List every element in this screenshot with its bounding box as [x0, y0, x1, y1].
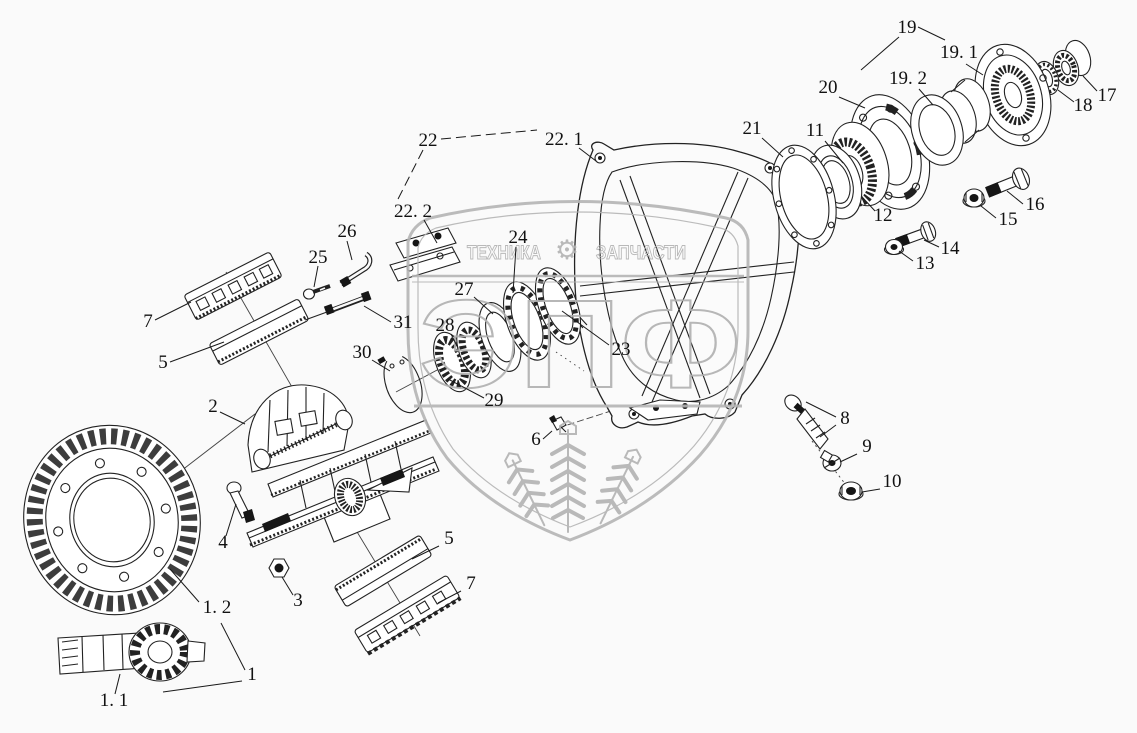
part-differential-case [247, 385, 439, 547]
callout-label-1.1: 1. 1 [100, 690, 129, 711]
callout-leader [282, 577, 293, 595]
callout-label-4: 4 [218, 532, 228, 553]
callout-label-14: 14 [941, 238, 961, 259]
callout-label-24: 24 [509, 227, 529, 248]
part-nut-10 [839, 482, 863, 500]
callout-label-2: 2 [208, 396, 218, 417]
callout-label-19.1: 19. 1 [940, 42, 978, 63]
callout-label-18: 18 [1074, 95, 1093, 116]
callout-label-23: 23 [612, 339, 631, 360]
watermark-text-tehnika: ТЕХНИКА [467, 243, 541, 264]
callout-label-19.2: 19. 2 [889, 68, 927, 89]
part-nut-15 [963, 189, 985, 207]
callout-leader [762, 138, 783, 157]
callout-label-21: 21 [743, 118, 762, 139]
callout-label-19: 19 [898, 17, 917, 38]
callout-label-22: 22 [419, 130, 438, 151]
callout-label-7: 7 [143, 311, 153, 332]
callout-label-3: 3 [293, 590, 303, 611]
callout-label-5: 5 [444, 528, 454, 549]
callout-label-29: 29 [485, 390, 504, 411]
callout-leader [441, 130, 537, 139]
callout-label-13: 13 [916, 253, 935, 274]
callout-label-12: 12 [874, 205, 893, 226]
diagram-svg: ТЕХНИКА ⚙ ЗАПЧАСТИ ЭПФ 2222. 122. 226252… [0, 0, 1137, 733]
callout-label-28: 28 [436, 315, 455, 336]
callout-leader [220, 412, 245, 424]
callout-label-16: 16 [1026, 194, 1045, 215]
callout-label-31: 31 [394, 312, 413, 333]
part-nut-3 [269, 559, 289, 577]
callout-leader [806, 402, 836, 417]
callout-leader [314, 266, 318, 287]
part-ring-gear [6, 409, 218, 631]
callout-label-9: 9 [862, 436, 872, 457]
part-bolt-4 [227, 482, 255, 523]
part-pipe-31 [305, 291, 371, 320]
callout-label-17: 17 [1098, 85, 1117, 106]
callout-label-6: 6 [531, 429, 541, 450]
callout-leader [1007, 191, 1023, 204]
callout-label-1.2: 1. 2 [203, 597, 232, 618]
callout-leader [861, 37, 899, 70]
part-lock-bracket-22-2 [390, 228, 460, 281]
part-oil-pipe-26 [340, 254, 370, 287]
part-drive-pinion [58, 623, 205, 681]
callout-label-1: 1 [247, 664, 257, 685]
callout-leader [1058, 90, 1074, 102]
parts-diagram-page: ТЕХНИКА ⚙ ЗАПЧАСТИ ЭПФ 2222. 122. 226252… [0, 0, 1137, 733]
callout-leader [918, 27, 945, 40]
callout-leader [899, 251, 913, 261]
callout-leader [221, 623, 245, 670]
callout-leader [1083, 76, 1097, 91]
callout-label-25: 25 [309, 247, 328, 268]
part-bearing-cage-7-upper [184, 252, 282, 321]
callout-label-5: 5 [158, 352, 168, 373]
callout-label-30: 30 [353, 342, 372, 363]
callout-leader [543, 431, 552, 439]
callout-leader [840, 454, 857, 462]
part-breather-valve-8 [782, 392, 828, 449]
callout-label-15: 15 [999, 209, 1018, 230]
callout-leader [163, 681, 242, 692]
callout-label-20: 20 [819, 77, 838, 98]
callout-leader [981, 206, 996, 218]
callout-label-8: 8 [840, 408, 850, 429]
callout-label-7: 7 [466, 573, 476, 594]
part-bolt-25 [304, 286, 331, 299]
callout-leader [347, 241, 352, 260]
callout-label-26: 26 [338, 221, 357, 242]
part-elbow-fitting-9 [821, 451, 841, 471]
callout-label-22.1: 22. 1 [545, 129, 583, 150]
callout-label-27: 27 [455, 279, 474, 300]
part-bearing-race-5-upper [209, 299, 309, 366]
callout-label-10: 10 [883, 471, 902, 492]
watermark-text-zapchasti: ЗАПЧАСТИ [596, 243, 686, 264]
callout-label-22.2: 22. 2 [394, 201, 432, 222]
callout-leader [862, 489, 880, 492]
callout-label-11: 11 [806, 120, 824, 141]
callout-leader [155, 302, 191, 320]
watermark-gear-icon: ⚙ [555, 235, 579, 266]
callout-leader [364, 306, 391, 322]
callout-leader [396, 150, 423, 203]
